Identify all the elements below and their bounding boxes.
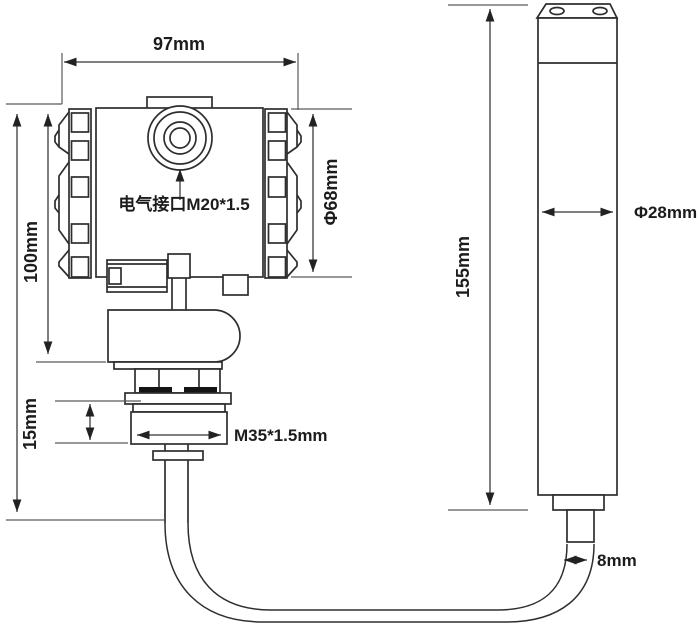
dim-label-cable-diameter: 8mm [597, 551, 637, 571]
dimensional-drawing-page: 97mm 100mm 15mm Φ68mm 电气接口M20*1.5 M35*1.… [0, 0, 700, 629]
dim-label-probe-length: 155mm [453, 227, 473, 307]
dim-label-process-thread: M35*1.5mm [234, 426, 328, 446]
cable-outline [165, 523, 594, 622]
dim-label-probe-diameter: Φ28mm [634, 203, 697, 223]
probe-cable-neck [567, 510, 594, 542]
thread-block [131, 412, 227, 444]
display-bezel-circle [148, 106, 212, 170]
pipe-collar [153, 451, 203, 460]
electrical-interface-label: 电气接口M20*1.5 [84, 195, 284, 215]
probe-top-face [537, 4, 617, 18]
dim-label-housing-diameter: Φ68mm [321, 147, 341, 237]
probe-step [553, 495, 604, 510]
probe-body [538, 18, 617, 495]
dim-label-overall-width: 97mm [144, 34, 214, 54]
process-connection-capsule [108, 310, 240, 362]
transmitter-outline [55, 97, 301, 523]
dim-label-thread-section-height: 15mm [20, 389, 40, 459]
flange-plate [125, 393, 231, 404]
probe-outline [537, 4, 617, 542]
technical-drawing-svg [0, 0, 700, 629]
dim-label-housing-height: 100mm [21, 212, 41, 292]
